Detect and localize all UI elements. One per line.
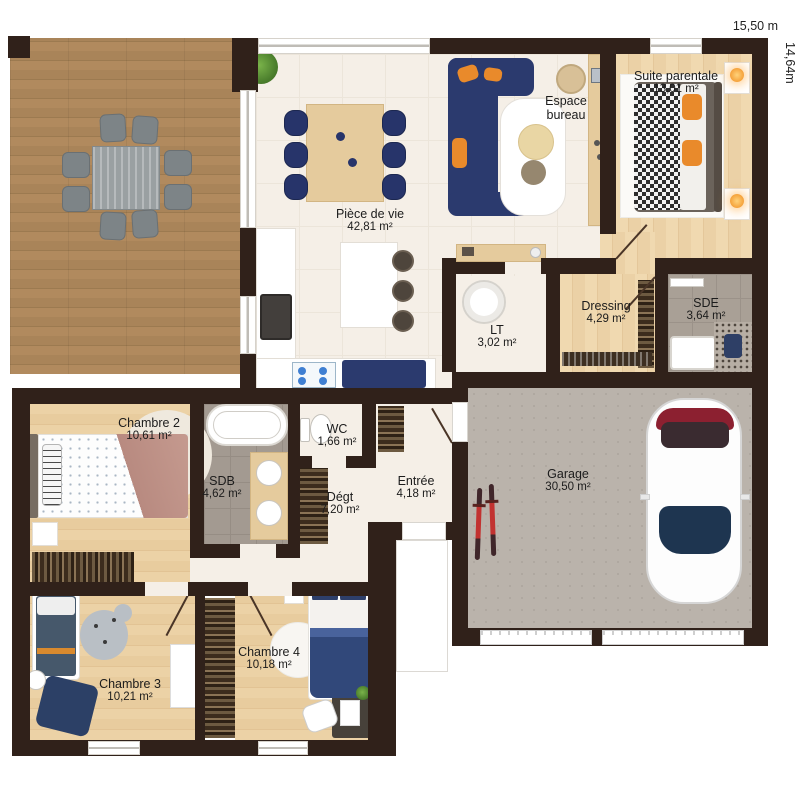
garage-door xyxy=(480,630,592,645)
shower-tray xyxy=(670,336,716,370)
wall xyxy=(12,388,30,756)
wall xyxy=(452,372,768,388)
side-table xyxy=(521,160,546,185)
lamp xyxy=(730,194,744,208)
wall xyxy=(195,596,205,740)
wall xyxy=(288,404,300,558)
car-mirror xyxy=(640,494,650,500)
washing-machine xyxy=(462,280,506,324)
bar-stool xyxy=(392,310,414,332)
dining-chair xyxy=(382,110,406,136)
entry-porch xyxy=(396,540,448,672)
room-label-sdb: SDB 4,62 m² xyxy=(203,474,242,502)
wall xyxy=(452,372,468,402)
plot-width-dimension: 15,50 m xyxy=(733,19,778,33)
wall xyxy=(8,36,30,58)
outdoor-chair xyxy=(131,115,159,145)
door-opening xyxy=(145,582,188,596)
room-label-espace-bureau: Espace bureau xyxy=(533,94,599,122)
bear-rug xyxy=(114,604,132,622)
plot-depth-dimension: 14,64m xyxy=(783,42,797,84)
kitchen-sink xyxy=(260,294,292,340)
wall xyxy=(12,388,452,404)
headboard xyxy=(714,82,722,212)
room-label-suite-parentale: Suite parentale 13,01 m² xyxy=(634,69,718,97)
window xyxy=(240,296,256,354)
door-opening xyxy=(505,262,541,274)
wall xyxy=(376,522,402,540)
window xyxy=(258,38,430,54)
bed-blanket xyxy=(634,84,682,210)
outdoor-chair xyxy=(99,211,126,240)
room-label-garage: Garage 30,50 m² xyxy=(545,467,590,495)
door-opening xyxy=(240,544,276,558)
wall xyxy=(362,404,376,468)
outdoor-chair xyxy=(164,150,192,176)
dining-chair xyxy=(382,174,406,200)
outdoor-chair xyxy=(164,184,192,210)
door-opening xyxy=(248,582,292,596)
garage-door xyxy=(602,630,744,645)
blanket-fold xyxy=(310,628,368,637)
wall xyxy=(240,228,256,298)
sideboard-decor xyxy=(530,247,541,258)
room-label-sde: SDE 3,64 m² xyxy=(687,296,726,324)
car-windshield xyxy=(659,506,731,554)
wall xyxy=(446,522,468,540)
shoe-rack xyxy=(562,352,652,366)
pillow xyxy=(682,140,702,166)
outdoor-chair xyxy=(62,186,90,212)
cooktop xyxy=(292,362,336,388)
room-label-chambre-2: Chambre 2 10,61 m² xyxy=(118,416,180,444)
outdoor-table xyxy=(92,146,160,210)
side-table xyxy=(518,124,554,160)
room-label-lt: LT 3,02 m² xyxy=(478,323,517,351)
desk-chair xyxy=(556,64,586,94)
wardrobe xyxy=(205,598,235,738)
hallway-floor xyxy=(190,558,380,582)
kitchen-counter-navy xyxy=(342,360,426,388)
pillow xyxy=(37,597,75,615)
dining-table xyxy=(306,104,384,202)
room-label-piece-de-vie: Pièce de vie 42,81 m² xyxy=(336,207,404,235)
pillow xyxy=(682,94,702,120)
bar-stool xyxy=(392,250,414,272)
room-label-degt: Dégt 7,20 m² xyxy=(321,490,360,518)
sofa-cushion xyxy=(452,138,467,168)
dining-chair xyxy=(382,142,406,168)
entry-closet xyxy=(378,406,404,452)
toilet xyxy=(300,418,310,442)
door-opening xyxy=(452,402,468,442)
room-label-entree: Entrée 4,18 m² xyxy=(397,474,436,502)
terrace-sliding-door xyxy=(240,90,256,228)
lamp xyxy=(730,68,744,82)
rug-dot xyxy=(94,624,98,628)
wall xyxy=(600,38,616,234)
bed-accent xyxy=(37,648,75,654)
wall xyxy=(430,38,652,54)
towel-rail xyxy=(670,278,704,287)
kitchen-island xyxy=(340,242,398,328)
desk xyxy=(170,644,196,708)
wall xyxy=(442,258,456,372)
rug-dot xyxy=(112,618,116,622)
pillow xyxy=(42,444,62,506)
car-rear-window xyxy=(661,422,729,448)
desk xyxy=(340,700,360,726)
outdoor-chair xyxy=(62,152,90,178)
wall xyxy=(655,258,768,274)
room-label-chambre-4: Chambre 4 10,18 m² xyxy=(238,645,300,673)
rug-dot xyxy=(103,640,107,644)
outdoor-chair xyxy=(99,113,126,142)
window xyxy=(88,741,140,755)
room-label-dressing: Dressing 4,29 m² xyxy=(581,299,630,327)
bathtub xyxy=(206,404,288,446)
sideboard-decor xyxy=(462,247,474,256)
bar-stool xyxy=(392,280,414,302)
wall xyxy=(12,582,145,596)
room-label-wc: WC 1,66 m² xyxy=(318,422,357,450)
car-mirror xyxy=(740,494,750,500)
dining-chair xyxy=(284,142,308,168)
wall xyxy=(655,274,668,372)
room-label-chambre-3: Chambre 3 10,21 m² xyxy=(99,677,161,705)
dining-chair xyxy=(284,110,308,136)
wall xyxy=(368,522,396,740)
dining-chair xyxy=(284,174,308,200)
sofa xyxy=(448,58,498,214)
wall xyxy=(752,38,768,644)
sink xyxy=(256,500,282,526)
sink xyxy=(256,460,282,486)
nightstand xyxy=(32,522,58,546)
bed-blanket xyxy=(92,434,188,518)
wall xyxy=(546,258,560,372)
shower-stool xyxy=(724,334,742,358)
wall xyxy=(292,582,380,596)
outdoor-chair xyxy=(131,209,159,239)
window xyxy=(258,741,308,755)
table-setting xyxy=(348,158,357,167)
wall xyxy=(12,740,396,756)
car xyxy=(646,398,742,604)
window xyxy=(650,38,702,54)
wall xyxy=(442,262,505,274)
wardrobe xyxy=(32,552,134,582)
wall xyxy=(232,38,258,92)
door-opening xyxy=(312,456,346,468)
table-setting xyxy=(336,132,345,141)
front-door xyxy=(402,522,446,540)
floor-plan: Pièce de vie 42,81 m² Suite parentale 13… xyxy=(0,0,800,800)
sofa-cushion xyxy=(483,67,503,82)
wall xyxy=(188,582,248,596)
